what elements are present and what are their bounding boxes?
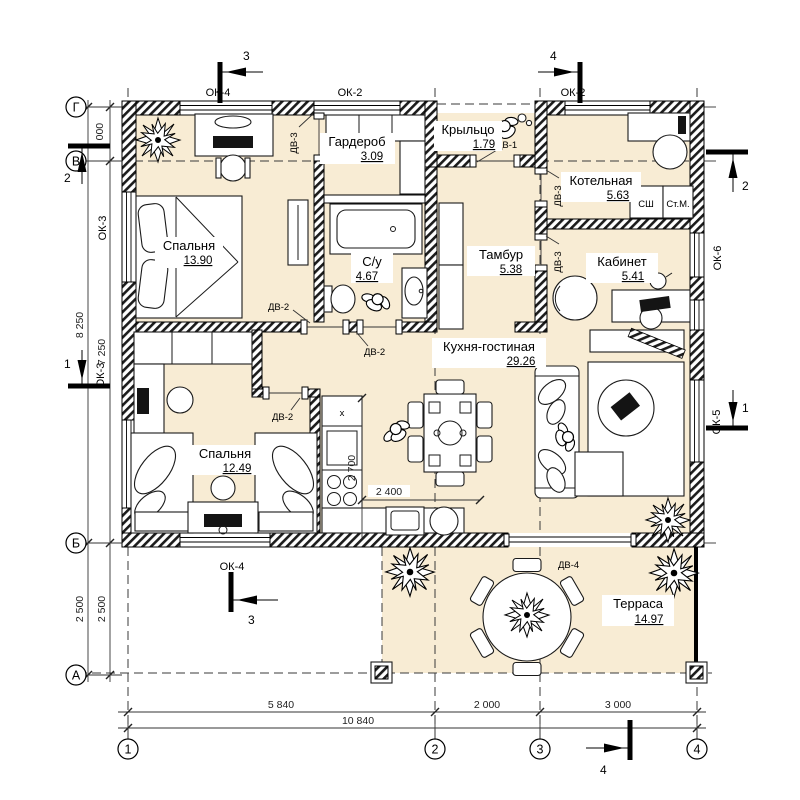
room-area-porch: 1.79 xyxy=(473,139,495,151)
monitor xyxy=(213,136,253,148)
boiler xyxy=(653,135,687,169)
terrace-column xyxy=(686,662,707,683)
door-label-dv3-a: ДВ-3 xyxy=(289,132,300,153)
window-label-ok4-bottom: ОК-4 xyxy=(220,561,245,573)
dim-8250: 8 250 xyxy=(74,312,86,338)
window-ok4-top xyxy=(180,101,272,115)
axis-letter-a: А xyxy=(72,669,81,683)
window-label-ok5: ОК-5 xyxy=(711,410,723,435)
section-label: 1 xyxy=(742,401,749,415)
room-name-wardrobe: Гардероб xyxy=(328,134,385,149)
ottoman xyxy=(575,452,623,496)
door-label-dv2-b: ДВ-2 xyxy=(364,347,385,358)
section-label: 2 xyxy=(64,171,71,185)
window-living-right xyxy=(690,300,704,330)
room-area-boiler: 5.63 xyxy=(607,190,629,202)
axis-letter-g: Г xyxy=(73,101,80,115)
chair xyxy=(513,559,541,572)
room-name-terrace: Терраса xyxy=(613,596,664,611)
room-area-bedroom1: 13.90 xyxy=(184,255,213,267)
dim-2400: 2 400 xyxy=(376,486,402,498)
window-label-ok3-upper: ОК-3 xyxy=(97,216,109,241)
section-label: 1 xyxy=(64,357,71,371)
desk-chair xyxy=(211,476,235,500)
monitor xyxy=(137,388,149,414)
window-label-ok2-top: ОК-2 xyxy=(338,87,363,99)
toilet xyxy=(331,285,355,313)
dim-2000: 2 000 xyxy=(474,699,500,711)
section-label: 4 xyxy=(550,49,557,63)
wall-bedroom1-bath xyxy=(314,158,324,322)
window-ok6 xyxy=(690,233,704,277)
window-ok2-top xyxy=(314,101,400,115)
window-ok3-upper xyxy=(122,192,136,282)
round-sink xyxy=(430,507,458,535)
window-label-ok2-topright: ОК-2 xyxy=(561,87,586,99)
section-label: 3 xyxy=(243,49,250,63)
floor-plan-page: 1 000 8 250 7 250 2 500 2 500 5 840 2 00… xyxy=(0,0,800,800)
room-name-bedroom2: Спальня xyxy=(199,446,251,461)
chair xyxy=(477,436,492,462)
room-area-wardrobe: 3.09 xyxy=(361,151,383,163)
section-2-right: 2 xyxy=(706,152,749,193)
room-name-tambour: Тамбур xyxy=(479,247,523,262)
section-label: 2 xyxy=(742,179,749,193)
window-label-ok3-lower: ОК-3 xyxy=(95,363,107,388)
chair xyxy=(408,436,423,462)
room-name-bathroom: С/у xyxy=(362,254,382,269)
chair xyxy=(477,402,492,428)
dim-5840: 5 840 xyxy=(268,699,294,711)
room-area-terrace: 14.97 xyxy=(635,614,664,626)
chair xyxy=(513,663,541,676)
dim-2700: 2 700 xyxy=(346,455,358,481)
label-washing-machine: Ст.М. xyxy=(666,199,689,210)
room-name-kitchen-living: Кухня-гостиная xyxy=(443,339,535,354)
axis-number-3: 3 xyxy=(537,743,544,757)
tambour-furniture xyxy=(439,203,463,329)
door-label-dv2-c: ДВ-2 xyxy=(272,412,293,423)
room-name-boiler: Котельная xyxy=(570,173,633,188)
door-label-dv3-c: ДВ-3 xyxy=(553,251,564,272)
door-label-dv2-a: ДВ-2 xyxy=(268,302,289,313)
room-name-bedroom1: Спальня xyxy=(163,238,215,253)
room-area-bedroom2: 12.49 xyxy=(223,463,252,475)
sink xyxy=(405,277,423,305)
dining-table xyxy=(424,394,476,472)
label-stove-mark: х xyxy=(340,408,345,419)
wall-wardrobe-bath xyxy=(324,195,425,203)
door-label-dv4: ДВ-4 xyxy=(558,560,579,571)
room-area-office: 5.41 xyxy=(622,271,644,283)
closet xyxy=(439,203,463,265)
axis-letter-b: Б xyxy=(72,537,80,551)
section-label: 4 xyxy=(600,763,607,777)
monitor xyxy=(204,514,242,527)
terrace-column xyxy=(371,662,392,683)
axis-number-4: 4 xyxy=(694,743,701,757)
section-4-bottom: 4 xyxy=(586,720,630,777)
dim-10840: 10 840 xyxy=(342,715,374,727)
floor-plan-drawing: 1 000 8 250 7 250 2 500 2 500 5 840 2 00… xyxy=(0,0,800,800)
chair xyxy=(436,380,464,394)
room-area-tambour: 5.38 xyxy=(500,264,522,276)
chair xyxy=(408,402,423,428)
dim-2500-inner: 2 500 xyxy=(96,596,108,622)
room-name-porch: Крыльцо xyxy=(441,122,494,137)
window-label-ok6: ОК-6 xyxy=(712,246,724,271)
wall-boiler-office xyxy=(547,219,690,229)
window-ok5 xyxy=(690,380,704,462)
section-3-bottom: 3 xyxy=(231,572,278,627)
axis-number-2: 2 xyxy=(432,743,439,757)
room-name-office: Кабинет xyxy=(597,254,646,269)
closet xyxy=(439,265,463,329)
wall-tambour-boiler xyxy=(535,101,547,170)
window-ok4-bottom xyxy=(180,533,270,547)
room-area-bathroom: 4.67 xyxy=(356,271,378,283)
axis-number-1: 1 xyxy=(125,743,132,757)
room-area-kitchen-living: 29.26 xyxy=(507,356,536,368)
wall-mid xyxy=(136,322,306,332)
desk-chair xyxy=(220,155,246,181)
dim-3000: 3 000 xyxy=(605,699,631,711)
wardrobe-cabinet xyxy=(134,332,252,364)
dim-2500-outer: 2 500 xyxy=(74,596,86,622)
chair xyxy=(436,472,464,486)
label-drying-cabinet: СШ xyxy=(638,199,654,210)
window-label-ok4-top: ОК-4 xyxy=(206,87,231,99)
desk-chair xyxy=(167,387,193,413)
section-label: 3 xyxy=(248,613,255,627)
door-dv4-terrace xyxy=(504,534,636,546)
dim-7250: 7 250 xyxy=(96,339,108,365)
